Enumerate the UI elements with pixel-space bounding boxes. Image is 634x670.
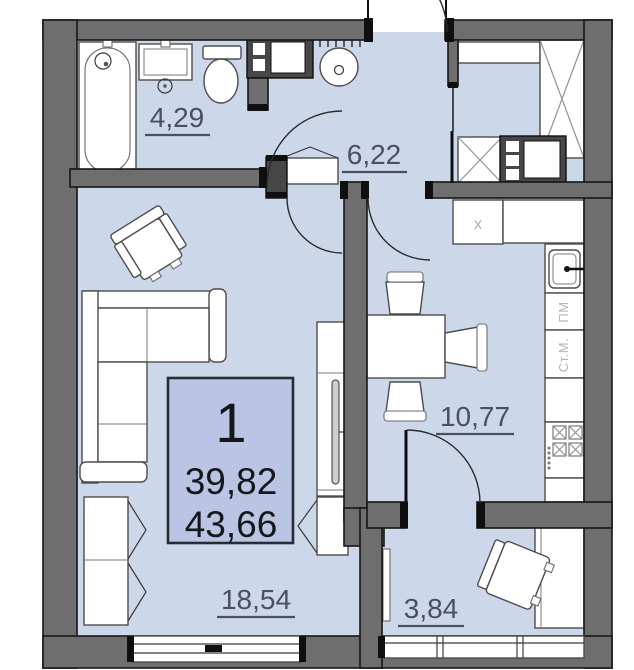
tv-icon	[332, 380, 339, 484]
hallway-area-label: 6,22	[347, 139, 402, 170]
sanitary-shaft	[247, 38, 313, 78]
door-post	[266, 157, 287, 198]
floor-plan: x ПМ Ст.М.	[0, 0, 634, 670]
wall-partition-center	[344, 182, 367, 522]
hallway-round-stool	[320, 48, 358, 86]
floor-plan-canvas: x ПМ Ст.М.	[0, 0, 634, 670]
apartment-info-box: 1 39,82 43,66	[168, 378, 293, 545]
balcony-area-label: 3,84	[404, 593, 459, 624]
kitchen-chair-bottom	[384, 382, 426, 421]
bathtub	[79, 36, 136, 177]
living-area-label: 18,54	[221, 584, 291, 615]
outside-top	[0, 0, 634, 20]
bathroom-area-label: 4,29	[150, 102, 205, 133]
wall-kitchen-bottom-right	[477, 502, 612, 528]
entry-jamb-left	[364, 18, 373, 42]
kitchen-area-label: 10,77	[440, 401, 510, 432]
kitchen-chair-top	[386, 272, 424, 314]
water-heater-unit	[500, 136, 566, 184]
window-tick	[205, 645, 222, 652]
wall-mirror	[383, 549, 390, 621]
living-area-value: 39,82	[185, 461, 278, 502]
washing-machine-label: Ст.М.	[556, 338, 571, 372]
closet-counter	[458, 42, 540, 63]
living-room-window	[127, 636, 306, 662]
kitchen-counter-top: x	[453, 200, 584, 244]
balcony-windows	[378, 636, 584, 658]
kitchen-sink	[549, 250, 584, 288]
closet-x-cell	[458, 137, 502, 183]
total-area-value: 43,66	[185, 504, 278, 545]
closet-door-jamb	[448, 40, 458, 86]
wall-left	[43, 20, 77, 668]
counter-x-mark: x	[474, 216, 482, 233]
wall-bathroom-bottom	[70, 169, 267, 187]
kitchen-table	[367, 315, 445, 378]
wall-right	[584, 20, 612, 668]
flat-number: 1	[215, 391, 246, 454]
wall-top-left	[43, 20, 368, 40]
dishwasher-label: ПМ	[556, 301, 571, 322]
wall-kitchen-top	[428, 182, 612, 198]
